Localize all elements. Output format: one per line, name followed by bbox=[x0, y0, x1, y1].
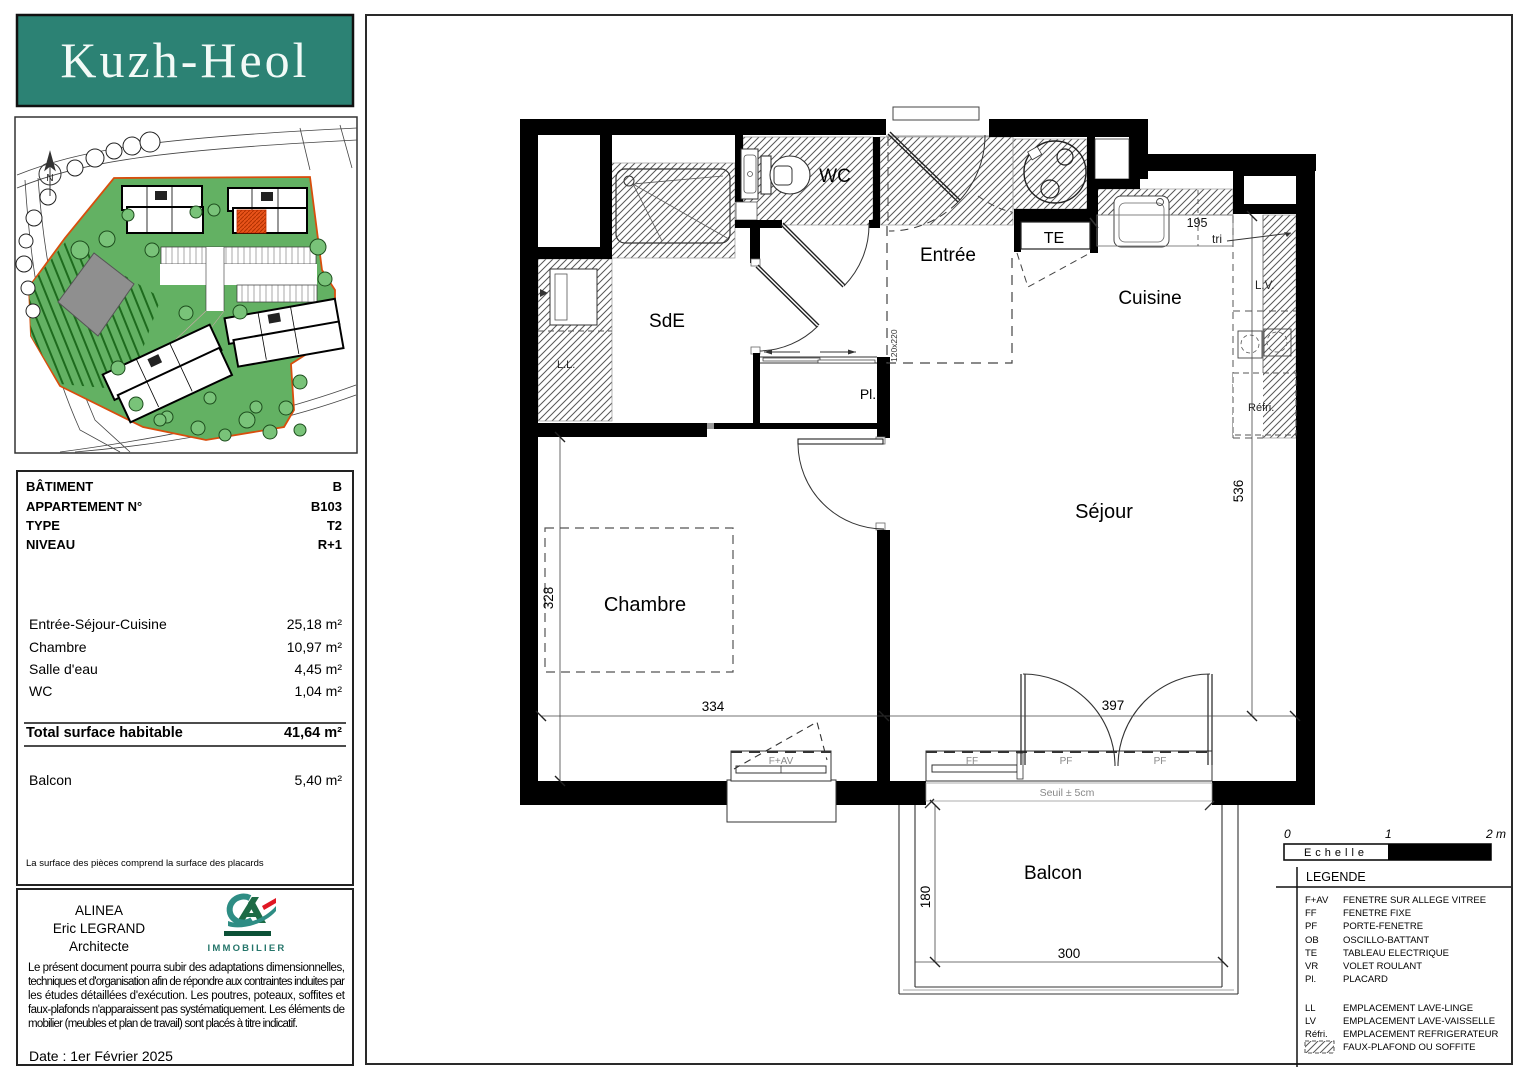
svg-text:VR: VR bbox=[1305, 961, 1318, 972]
svg-text:Entrée-Séjour-Cuisine: Entrée-Séjour-Cuisine bbox=[29, 616, 167, 632]
svg-text:Salle d'eau: Salle d'eau bbox=[29, 661, 98, 677]
svg-text:B: B bbox=[333, 479, 342, 494]
svg-text:VOLET ROULANT: VOLET ROULANT bbox=[1343, 961, 1422, 972]
svg-text:N: N bbox=[46, 173, 53, 184]
svg-text:WC: WC bbox=[819, 166, 851, 187]
svg-text:LV: LV bbox=[1305, 1016, 1317, 1027]
svg-text:F+AV: F+AV bbox=[1305, 895, 1329, 906]
svg-text:PORTE-FENETRE: PORTE-FENETRE bbox=[1343, 921, 1423, 932]
svg-text:0: 0 bbox=[1284, 827, 1291, 841]
svg-text:FENETRE FIXE: FENETRE FIXE bbox=[1343, 908, 1411, 919]
svg-text:SdE: SdE bbox=[649, 311, 685, 332]
svg-text:Pl.: Pl. bbox=[860, 386, 876, 402]
svg-text:PF: PF bbox=[1154, 756, 1167, 767]
svg-text:FENETRE SUR ALLEGE VITREE: FENETRE SUR ALLEGE VITREE bbox=[1343, 895, 1486, 906]
svg-text:Echelle: Echelle bbox=[1304, 847, 1368, 859]
svg-text:IMMOBILIER: IMMOBILIER bbox=[208, 943, 287, 954]
svg-text:La surface des pièces comprend: La surface des pièces comprend la surfac… bbox=[26, 858, 264, 869]
svg-text:328: 328 bbox=[541, 587, 556, 610]
svg-text:PF: PF bbox=[1305, 921, 1317, 932]
svg-text:195: 195 bbox=[1187, 216, 1208, 230]
svg-text:R+1: R+1 bbox=[318, 537, 342, 552]
svg-text:PLACARD: PLACARD bbox=[1343, 974, 1388, 985]
svg-text:EMPLACEMENT REFRIGERATEUR: EMPLACEMENT REFRIGERATEUR bbox=[1343, 1029, 1499, 1040]
svg-text:180: 180 bbox=[918, 886, 933, 909]
svg-text:mobilier (meubles et plan de t: mobilier (meubles et plan de travail) so… bbox=[28, 1018, 298, 1030]
svg-text:APPARTEMENT N°: APPARTEMENT N° bbox=[26, 499, 142, 514]
svg-text:OB: OB bbox=[1305, 935, 1319, 946]
svg-text:Cuisine: Cuisine bbox=[1118, 288, 1181, 309]
svg-text:Balcon: Balcon bbox=[1024, 863, 1082, 884]
svg-text:LL: LL bbox=[1305, 1003, 1316, 1014]
svg-text:Chambre: Chambre bbox=[604, 594, 686, 616]
svg-text:TABLEAU ELECTRIQUE: TABLEAU ELECTRIQUE bbox=[1343, 948, 1449, 959]
svg-text:Total surface habitable: Total surface habitable bbox=[26, 725, 183, 741]
svg-text:WC: WC bbox=[29, 683, 52, 699]
svg-text:LEGENDE: LEGENDE bbox=[1306, 870, 1366, 884]
svg-text:120x220: 120x220 bbox=[889, 329, 899, 362]
svg-text:PF: PF bbox=[1060, 756, 1073, 767]
svg-text:2 m: 2 m bbox=[1485, 827, 1506, 841]
svg-text:F+AV: F+AV bbox=[769, 756, 794, 767]
svg-text:Réfri.: Réfri. bbox=[1305, 1029, 1328, 1040]
svg-text:Le présent document pourra sub: Le présent document pourra subir des ada… bbox=[28, 962, 345, 974]
svg-text:les études détaillées d'exécut: les études détaillées d'exécution. Les p… bbox=[28, 990, 346, 1002]
svg-text:Architecte: Architecte bbox=[69, 939, 129, 954]
svg-text:Balcon: Balcon bbox=[29, 772, 72, 788]
svg-text:EMPLACEMENT LAVE-LINGE: EMPLACEMENT LAVE-LINGE bbox=[1343, 1003, 1473, 1014]
svg-text:41,64 m²: 41,64 m² bbox=[284, 725, 342, 741]
svg-text:Seuil ± 5cm: Seuil ± 5cm bbox=[1040, 787, 1095, 799]
svg-text:FF: FF bbox=[1305, 908, 1317, 919]
svg-text:techniques et d'organisation a: techniques et d'organisation afin de rép… bbox=[28, 976, 345, 988]
svg-text:1,04 m²: 1,04 m² bbox=[295, 683, 343, 699]
svg-text:OSCILLO-BATTANT: OSCILLO-BATTANT bbox=[1343, 935, 1429, 946]
svg-text:NIVEAU: NIVEAU bbox=[26, 537, 75, 552]
svg-text:EMPLACEMENT LAVE-VAISSELLE: EMPLACEMENT LAVE-VAISSELLE bbox=[1343, 1016, 1495, 1027]
svg-text:334: 334 bbox=[702, 699, 725, 714]
svg-text:Entrée: Entrée bbox=[920, 245, 976, 266]
svg-text:Séjour: Séjour bbox=[1075, 501, 1133, 523]
svg-text:FAUX-PLAFOND OU SOFFITE: FAUX-PLAFOND OU SOFFITE bbox=[1343, 1042, 1476, 1053]
svg-text:Pl.: Pl. bbox=[1305, 974, 1316, 985]
svg-text:TE: TE bbox=[1305, 948, 1317, 959]
svg-text:tri: tri bbox=[1212, 232, 1222, 246]
svg-text:4,45 m²: 4,45 m² bbox=[295, 661, 343, 677]
svg-text:5,40 m²: 5,40 m² bbox=[295, 772, 343, 788]
svg-text:Kuzh-Heol: Kuzh-Heol bbox=[60, 32, 309, 88]
svg-text:Date : 1er Février 2025: Date : 1er Février 2025 bbox=[29, 1048, 173, 1064]
svg-text:397: 397 bbox=[1102, 698, 1125, 713]
svg-text:Eric LEGRAND: Eric LEGRAND bbox=[53, 921, 146, 936]
svg-text:B103: B103 bbox=[311, 499, 342, 514]
svg-text:300: 300 bbox=[1058, 946, 1081, 961]
svg-text:BÂTIMENT: BÂTIMENT bbox=[26, 479, 93, 494]
svg-text:L.L.: L.L. bbox=[557, 359, 575, 371]
svg-text:536: 536 bbox=[1231, 480, 1246, 503]
svg-text:FF: FF bbox=[966, 756, 978, 767]
svg-text:Chambre: Chambre bbox=[29, 639, 87, 655]
svg-text:TYPE: TYPE bbox=[26, 518, 60, 533]
svg-text:faux-plafonds n'apparaissent p: faux-plafonds n'apparaissent pas systéma… bbox=[28, 1004, 345, 1016]
svg-text:TE: TE bbox=[1044, 230, 1064, 247]
svg-text:T2: T2 bbox=[327, 518, 342, 533]
svg-text:10,97 m²: 10,97 m² bbox=[287, 639, 343, 655]
svg-text:1: 1 bbox=[1385, 827, 1392, 841]
svg-text:L.V.: L.V. bbox=[1255, 280, 1274, 292]
svg-text:25,18 m²: 25,18 m² bbox=[287, 616, 343, 632]
svg-text:ALINEA: ALINEA bbox=[75, 903, 123, 918]
